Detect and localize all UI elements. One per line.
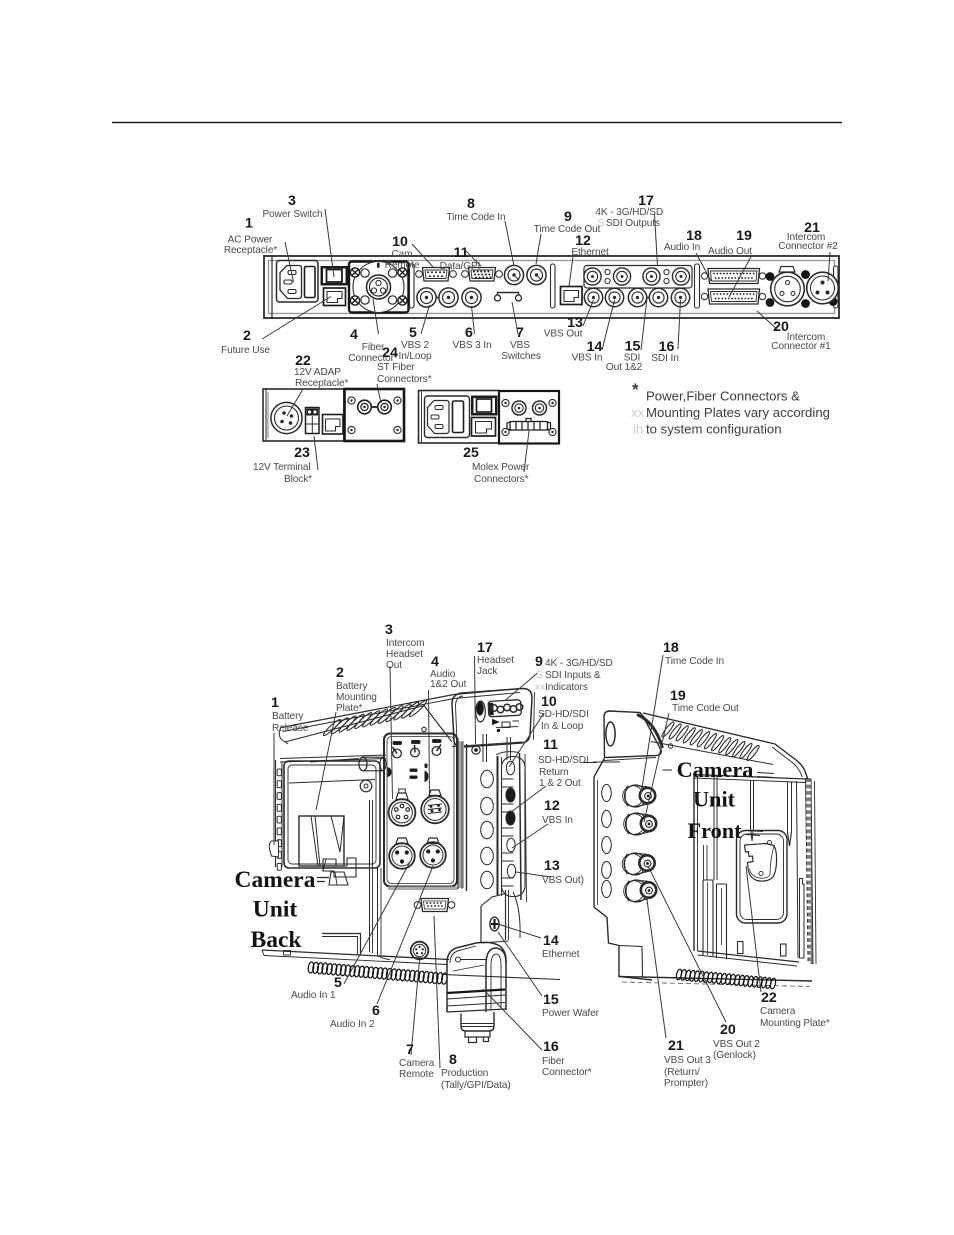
svg-text:Battery: Battery xyxy=(336,681,368,692)
svg-text:S: S xyxy=(598,218,605,229)
svg-text:Ethernet: Ethernet xyxy=(542,949,580,960)
svg-text:Camera: Camera xyxy=(235,867,316,893)
svg-text:Receptacle*: Receptacle* xyxy=(295,378,348,389)
svg-text:1: 1 xyxy=(271,695,279,711)
svg-text:8: 8 xyxy=(449,1052,457,1068)
svg-text:In/Loop: In/Loop xyxy=(399,351,432,362)
svg-text:Audio Out: Audio Out xyxy=(708,246,752,257)
svg-text:ST Fiber: ST Fiber xyxy=(377,362,415,373)
svg-text:Battery: Battery xyxy=(272,711,304,722)
svg-text:18: 18 xyxy=(663,640,679,656)
svg-text:Connector*: Connector* xyxy=(542,1067,592,1078)
svg-text:VBS Out 2: VBS Out 2 xyxy=(713,1039,760,1050)
svg-text:Time Code Out: Time Code Out xyxy=(672,703,739,714)
svg-text:Receptacle*: Receptacle* xyxy=(224,245,277,256)
svg-text:15: 15 xyxy=(543,992,559,1008)
svg-text:Audio In 1: Audio In 1 xyxy=(291,990,336,1001)
svg-text:2: 2 xyxy=(336,665,344,681)
svg-text:Remote: Remote xyxy=(385,260,420,271)
svg-text:8: 8 xyxy=(467,196,475,212)
svg-text:xx: xx xyxy=(631,405,645,420)
svg-text:Camera: Camera xyxy=(760,1006,796,1017)
svg-text:SD-HD/SDI: SD-HD/SDI xyxy=(538,709,589,720)
svg-text:Time Code In: Time Code In xyxy=(665,656,724,667)
svg-text:12V Terminal: 12V Terminal xyxy=(253,462,311,473)
svg-text:7: 7 xyxy=(406,1042,414,1058)
svg-text:1&2 Out: 1&2 Out xyxy=(430,679,467,690)
svg-text:3: 3 xyxy=(288,193,296,209)
svg-text:xx: xx xyxy=(535,682,545,693)
svg-text:Connectors*: Connectors* xyxy=(474,474,529,485)
svg-text:VBS Out: VBS Out xyxy=(544,329,583,340)
svg-text:(Tally/GPI/Data): (Tally/GPI/Data) xyxy=(441,1080,511,1091)
svg-text:Power,Fiber Connectors &: Power,Fiber Connectors & xyxy=(646,389,800,404)
svg-text:In & Loop: In & Loop xyxy=(541,721,584,732)
svg-text:Fiber: Fiber xyxy=(542,1056,565,1067)
svg-text:to system configuration: to system configuration xyxy=(646,422,782,437)
svg-text:AC Power: AC Power xyxy=(228,235,273,246)
svg-text:1 & 2 Out: 1 & 2 Out xyxy=(539,778,581,789)
svg-text:4K - 3G/HD/SD: 4K - 3G/HD/SD xyxy=(545,658,613,669)
svg-text:(Genlock): (Genlock) xyxy=(713,1050,756,1061)
svg-text:Audio In: Audio In xyxy=(664,242,700,253)
svg-text:S: S xyxy=(536,670,543,681)
svg-text:Prompter): Prompter) xyxy=(664,1078,708,1089)
svg-text:VBS: VBS xyxy=(510,340,530,351)
svg-text:Release: Release xyxy=(272,723,309,734)
svg-text:*: * xyxy=(632,380,639,399)
svg-text:2: 2 xyxy=(243,328,251,344)
svg-text:16: 16 xyxy=(543,1039,559,1055)
svg-text:Mounting Plate*: Mounting Plate* xyxy=(760,1018,830,1029)
svg-text:Plate*: Plate* xyxy=(336,703,363,714)
svg-text:14: 14 xyxy=(543,933,559,949)
svg-text:12: 12 xyxy=(544,798,560,814)
svg-text:Out 1&2: Out 1&2 xyxy=(606,362,643,373)
svg-text:(Return/: (Return/ xyxy=(664,1067,700,1078)
svg-text:Camera: Camera xyxy=(399,1058,435,1069)
svg-text:1: 1 xyxy=(245,216,253,232)
svg-text:VBS 3 In: VBS 3 In xyxy=(452,340,491,351)
svg-text:19: 19 xyxy=(670,688,686,704)
svg-text:13: 13 xyxy=(544,858,560,874)
svg-text:17: 17 xyxy=(477,640,493,656)
svg-text:Mounting: Mounting xyxy=(336,692,377,703)
svg-text:Future Use: Future Use xyxy=(221,345,270,356)
svg-text:Connector #1: Connector #1 xyxy=(771,341,831,352)
svg-text:VBS 2: VBS 2 xyxy=(401,340,430,351)
svg-text:10: 10 xyxy=(541,694,557,710)
svg-text:4: 4 xyxy=(350,327,358,343)
svg-text:Headset: Headset xyxy=(477,655,514,666)
svg-text:6: 6 xyxy=(465,325,473,341)
svg-text:Jack: Jack xyxy=(477,666,498,677)
svg-text:20: 20 xyxy=(720,1022,736,1038)
svg-text:4K - 3G/HD/SD: 4K - 3G/HD/SD xyxy=(595,207,663,218)
svg-text:Production: Production xyxy=(441,1068,488,1079)
svg-text:11: 11 xyxy=(454,245,469,261)
svg-text:Cam: Cam xyxy=(391,249,412,260)
svg-text:9: 9 xyxy=(535,654,543,670)
svg-text:Power Switch: Power Switch xyxy=(263,209,323,220)
svg-text:Camera: Camera xyxy=(677,757,754,782)
svg-text:22: 22 xyxy=(761,990,777,1006)
svg-text:Mounting Plates vary according: Mounting Plates vary according xyxy=(646,405,830,420)
svg-text:Audio In 2: Audio In 2 xyxy=(330,1019,375,1030)
svg-text:Front: Front xyxy=(687,818,742,843)
svg-text:Return: Return xyxy=(539,767,569,778)
svg-text:6: 6 xyxy=(372,1003,380,1019)
svg-text:25: 25 xyxy=(463,445,479,461)
svg-text:9: 9 xyxy=(564,209,572,225)
svg-text:Connectors*: Connectors* xyxy=(377,374,432,385)
svg-text:Indicators: Indicators xyxy=(545,682,588,693)
svg-text:Connector #2: Connector #2 xyxy=(778,241,838,252)
svg-text:12V ADAP: 12V ADAP xyxy=(294,367,341,378)
svg-text:Intercom: Intercom xyxy=(386,638,424,649)
svg-text:11: 11 xyxy=(543,737,558,753)
svg-text:Switches: Switches xyxy=(501,351,541,362)
svg-text:5: 5 xyxy=(334,975,342,991)
svg-text:SDI Inputs &: SDI Inputs & xyxy=(545,670,601,681)
svg-text:Molex Power: Molex Power xyxy=(472,462,530,473)
svg-text:SD-HD/SDI: SD-HD/SDI xyxy=(538,755,589,766)
svg-text:Back: Back xyxy=(251,927,303,953)
svg-text:10: 10 xyxy=(392,234,408,250)
svg-text:3: 3 xyxy=(385,622,393,638)
svg-text:23: 23 xyxy=(294,445,310,461)
svg-text:Out: Out xyxy=(386,660,402,671)
svg-text:ih: ih xyxy=(633,422,643,437)
svg-text:VBS Out 3: VBS Out 3 xyxy=(664,1055,711,1066)
svg-text:4: 4 xyxy=(431,654,439,670)
svg-text:SDI In: SDI In xyxy=(651,353,678,364)
svg-text:Ethernet: Ethernet xyxy=(571,247,609,258)
svg-text:Unit: Unit xyxy=(253,897,298,923)
svg-text:Block*: Block* xyxy=(284,474,312,485)
svg-text:Unit: Unit xyxy=(693,787,736,812)
svg-text:SDI Outputs: SDI Outputs xyxy=(606,218,660,229)
svg-text:Data/GPI: Data/GPI xyxy=(440,261,481,272)
svg-text:VBS In: VBS In xyxy=(572,353,603,364)
svg-text:Time Code In: Time Code In xyxy=(446,212,505,223)
svg-text:24: 24 xyxy=(382,345,398,361)
svg-text:19: 19 xyxy=(736,228,752,244)
svg-text:5: 5 xyxy=(409,325,417,341)
svg-text:21: 21 xyxy=(668,1038,684,1054)
svg-text:Remote: Remote xyxy=(399,1069,434,1080)
svg-text:Power Wafer: Power Wafer xyxy=(542,1008,600,1019)
svg-text:Headset: Headset xyxy=(386,649,423,660)
